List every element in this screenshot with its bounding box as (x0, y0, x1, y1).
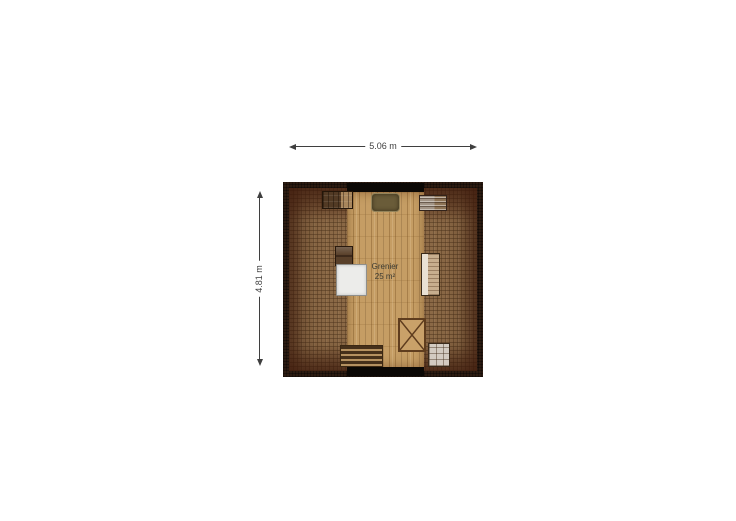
dresser-top-left (322, 191, 353, 209)
floorplan-canvas: 5.06 m 4.81 m Grenier 25 m² (0, 0, 736, 521)
arrow-left-icon (289, 144, 296, 150)
stairs (340, 345, 383, 367)
arrow-right-icon (470, 144, 477, 150)
cabinet-bottom-right (428, 343, 450, 367)
dimension-height-label: 4.81 m (253, 261, 265, 297)
floor-hatch (398, 318, 426, 352)
dimension-width: 5.06 m (289, 140, 477, 152)
cabinet-left (335, 246, 353, 266)
arrow-down-icon (257, 359, 263, 366)
room-name: Grenier (354, 262, 416, 272)
wall-bottom (347, 367, 424, 376)
dresser-top-right (419, 195, 447, 211)
dimension-width-label: 5.06 m (365, 140, 401, 152)
wall-top (347, 183, 424, 192)
room-area: 25 m² (354, 272, 416, 282)
room-label: Grenier 25 m² (354, 262, 416, 282)
floor-hatch-icon (398, 318, 426, 352)
floorplan-attic: Grenier 25 m² (283, 182, 483, 377)
storage-bench-top (371, 193, 400, 212)
shelf-sofa-right (421, 253, 440, 296)
arrow-up-icon (257, 191, 263, 198)
dimension-height: 4.81 m (253, 191, 265, 366)
